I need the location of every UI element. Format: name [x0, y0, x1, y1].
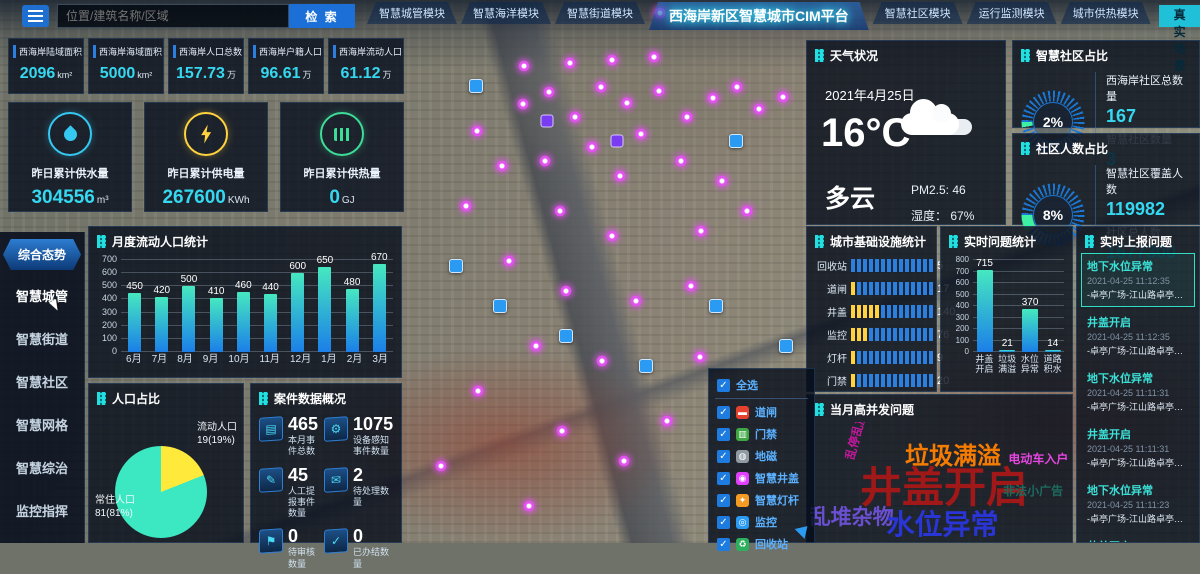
- layer-row-智慧井盖: ✓◉智慧井盖: [709, 467, 814, 489]
- infra-row-灯杆: 灯杆9: [807, 346, 936, 369]
- report-item[interactable]: 地下水位异常2021-04-25 11:11:31-卓亭广场-江山路卓亭广…: [1081, 365, 1195, 419]
- report-address: -卓亭广场-江山路卓亭广…: [1087, 512, 1189, 525]
- bar-column: 600: [289, 261, 306, 352]
- sidebar-item-智慧综治[interactable]: 智慧综治: [0, 446, 84, 489]
- infra-segment: [923, 328, 927, 341]
- x-tick-label: 3月: [372, 354, 388, 366]
- report-type: 地下水位异常: [1087, 482, 1189, 498]
- cloud-icon: [901, 113, 959, 135]
- bar[interactable]: [977, 270, 993, 352]
- infra-segment: [875, 259, 879, 272]
- x-tick-label: 7月: [152, 354, 168, 366]
- sidebar-item-智慧网格[interactable]: 智慧网格: [0, 403, 84, 446]
- infra-segment: [917, 259, 921, 272]
- area-stat-card: 西海岸海域面积5000km²: [88, 38, 164, 94]
- bar[interactable]: [210, 298, 223, 352]
- map-marker-device[interactable]: [531, 341, 542, 352]
- infra-segment: [851, 259, 855, 272]
- map-marker-device[interactable]: [504, 256, 515, 267]
- map-marker-device[interactable]: [732, 82, 743, 93]
- infra-row-井盖: 井盖140: [807, 300, 936, 323]
- map-marker-device[interactable]: [708, 93, 719, 104]
- water-drop-icon: [48, 112, 92, 156]
- module-tab[interactable]: 运行监测模块: [967, 2, 1057, 24]
- map-marker-device[interactable]: [717, 176, 728, 187]
- report-type: 井盖开启: [1087, 314, 1189, 330]
- case-stat-label: 待审核数量: [288, 547, 318, 570]
- map-marker-device[interactable]: [544, 87, 555, 98]
- supply-stat-card: 昨日累计供电量267600KWh: [144, 102, 268, 212]
- gauge-stat-label: 智慧社区覆盖人数: [1106, 165, 1191, 197]
- case-stat-texts: 0已办结数量: [353, 527, 393, 570]
- stat-label: 西海岸人口总数: [173, 45, 239, 58]
- map-marker-device[interactable]: [662, 416, 673, 427]
- report-item[interactable]: 地下水位异常2021-04-25 11:11:23-卓亭广场-江山路卓亭广…: [1081, 477, 1195, 531]
- report-type: 地下水位异常: [1087, 370, 1189, 386]
- bar-column: 650: [317, 255, 334, 352]
- stat-unit: 万: [227, 70, 236, 80]
- pm25-label: PM2.5:: [911, 183, 949, 197]
- report-address: -卓亭广场-江山路卓亭广…: [1087, 400, 1189, 413]
- lightning-icon: [184, 112, 228, 156]
- map-marker-device[interactable]: [631, 296, 642, 307]
- cursor-icon: [49, 299, 63, 316]
- panel-accent-icon: [1021, 142, 1030, 155]
- y-tick-label: 300: [947, 313, 969, 322]
- panel-head: 社区人数占比: [1013, 134, 1199, 161]
- infra-segment: [893, 374, 897, 387]
- report-item[interactable]: 地下水位异常2021-04-25 11:12:35-卓亭广场-江山路卓亭广…: [1081, 253, 1195, 307]
- infra-segment: [917, 282, 921, 295]
- layer-checkbox[interactable]: ✓: [717, 538, 730, 551]
- area-stat-card: 西海岸流动人口61.12万: [328, 38, 404, 94]
- panel-accent-icon: [949, 235, 958, 248]
- map-marker-device[interactable]: [619, 456, 630, 467]
- pie-slice-value: 81(81%): [95, 508, 135, 521]
- report-item[interactable]: 井盖开启2021-04-25 11:11:23-卓亭广场-江山路卓亭广…: [1081, 533, 1195, 542]
- infra-label: 灯杆: [813, 350, 847, 365]
- map-marker-camera[interactable]: [729, 134, 743, 148]
- bar[interactable]: [346, 289, 359, 352]
- layer-checkbox[interactable]: ✓: [717, 406, 730, 419]
- module-tab[interactable]: 城市供热模块: [1061, 2, 1151, 24]
- infra-segment: [881, 374, 885, 387]
- infra-segment: [929, 328, 933, 341]
- infra-segment: [929, 259, 933, 272]
- infra-segment: [851, 305, 855, 318]
- stat-unit: 万: [303, 70, 312, 80]
- case-stat-item: ▤465本月事件总数: [259, 415, 318, 458]
- infra-segment: [881, 305, 885, 318]
- bar-value: 14: [1047, 338, 1058, 349]
- map-marker-device[interactable]: [540, 156, 551, 167]
- bar-column: 420: [153, 285, 170, 352]
- report-type: 地下水位异常: [1087, 258, 1189, 274]
- infra-segment: [887, 328, 891, 341]
- infra-segment: [893, 351, 897, 364]
- infra-segment: [863, 259, 867, 272]
- plot-area: 0100200300400500600700450420500410460440…: [121, 260, 393, 352]
- x-tick-label: 垃圾满溢: [998, 354, 1016, 375]
- panel-title: 实时上报问题: [1100, 233, 1172, 250]
- bar[interactable]: [155, 297, 168, 352]
- pie-slice-name: 流动人口: [197, 422, 237, 435]
- infra-segment: [899, 259, 903, 272]
- case-stat-texts: 45人工提报事件数量: [288, 466, 318, 520]
- infra-segment: [857, 305, 861, 318]
- infra-segment: [923, 351, 927, 364]
- infra-segment: [851, 328, 855, 341]
- bar[interactable]: [128, 293, 141, 352]
- panel-population-ratio: 人口占比 流动人口19(19%)常住人口81(81%): [88, 383, 244, 543]
- bar[interactable]: [291, 273, 304, 352]
- map-marker-camera[interactable]: [639, 359, 653, 373]
- map-marker-device[interactable]: [597, 356, 608, 367]
- word-cloud: 垃圾满溢电动车入户井盖开启非法小广告乱堆杂物水位异常乱停乱放: [807, 422, 1072, 538]
- layer-checkbox[interactable]: ✓: [717, 472, 730, 485]
- search-bar: 检 索: [57, 4, 355, 28]
- y-tick-label: 700: [947, 267, 969, 276]
- layer-checkbox[interactable]: ✓: [717, 516, 730, 529]
- stat-label: 西海岸流动人口: [333, 45, 399, 58]
- humidity-label: 湿度：: [911, 209, 947, 223]
- done-shield-icon: ✓: [324, 528, 348, 554]
- problems-bar-chart: 01002003004005006007008007152137014井盖开启垃…: [941, 260, 1072, 375]
- plot-area: 01002003004005006007008007152137014: [973, 260, 1064, 352]
- map-marker-camera[interactable]: [493, 299, 507, 313]
- stat-label: 昨日累计供水量: [32, 165, 109, 181]
- x-tick-line: 开启: [975, 364, 993, 374]
- infra-segment: [887, 374, 891, 387]
- bar-value: 670: [371, 252, 388, 263]
- map-marker-device[interactable]: [754, 104, 765, 115]
- x-tick-label: 1月: [321, 354, 337, 366]
- sidebar-item-监控指挥[interactable]: 监控指挥: [0, 489, 84, 532]
- infra-segment: [875, 305, 879, 318]
- map-marker-device[interactable]: [596, 82, 607, 93]
- bar[interactable]: [264, 294, 277, 352]
- layer-label: 道闸: [755, 404, 777, 420]
- layer-row-道闸: ✓▬道闸: [709, 401, 814, 423]
- map-marker-device[interactable]: [615, 171, 626, 182]
- stat-value: 0GJ: [329, 187, 354, 209]
- panel-community-population-ratio: 社区人数占比8%智慧社区覆盖人数119982社区总人数1577300: [1012, 133, 1200, 225]
- layer-checkbox[interactable]: ✓: [717, 450, 730, 463]
- scene-button[interactable]: 真实场景: [1159, 5, 1200, 27]
- infra-segment: [869, 374, 873, 387]
- y-tick-label: 500: [947, 290, 969, 299]
- area-stat-card: 西海岸户籍人口96.61万: [248, 38, 324, 94]
- module-tab[interactable]: 智慧街道模块: [555, 2, 645, 24]
- map-marker-camera[interactable]: [449, 259, 463, 273]
- infra-segment: [875, 328, 879, 341]
- case-stat-item: ✉2待处理数量: [324, 466, 393, 520]
- infra-segment: [911, 351, 915, 364]
- sidebar-item-智慧城管[interactable]: 智慧城管: [0, 274, 84, 317]
- sidebar-item-智慧街道[interactable]: 智慧街道: [0, 317, 84, 360]
- infra-segment: [917, 374, 921, 387]
- device-sensor-icon: ⚙: [324, 416, 348, 442]
- infra-row-监控: 监控76: [807, 323, 936, 346]
- panel-accent-icon: [259, 392, 268, 405]
- pending-icon: ✉: [324, 467, 348, 493]
- infra-segment: [887, 259, 891, 272]
- map-marker-device[interactable]: [778, 92, 789, 103]
- stat-unit: KWh: [228, 195, 250, 206]
- report-type: 井盖开启: [1087, 426, 1189, 442]
- report-item[interactable]: 井盖开启2021-04-25 11:11:31-卓亭广场-江山路卓亭广…: [1081, 421, 1195, 475]
- area-stat-card: 西海岸陆域面积2096km²: [8, 38, 84, 94]
- sidebar-header-overview[interactable]: 综合态势: [3, 239, 81, 270]
- gauge-stat-value: 119982: [1106, 200, 1191, 218]
- pie-slice-label: 流动人口19(19%): [197, 422, 237, 447]
- bar-value: 500: [181, 274, 198, 285]
- hot-issue-word[interactable]: 乱堆杂物: [810, 501, 894, 531]
- case-stat-item: ✎45人工提报事件数量: [259, 466, 318, 520]
- map-marker-device[interactable]: [654, 86, 665, 97]
- bars: 7152137014: [973, 260, 1064, 352]
- map-marker-device[interactable]: [472, 126, 483, 137]
- infra-segment: [905, 328, 909, 341]
- stat-value: 157.73万: [173, 65, 239, 83]
- stat-label: 西海岸户籍人口: [253, 45, 319, 58]
- case-stat-label: 设备感知事件数量: [353, 435, 393, 458]
- infra-segment: [929, 351, 933, 364]
- bar-column: 410: [208, 286, 225, 352]
- menu-icon[interactable]: [22, 5, 49, 27]
- bar[interactable]: [237, 292, 250, 352]
- bar-value: 370: [1022, 297, 1039, 308]
- map-marker-camera[interactable]: [559, 329, 573, 343]
- hot-issue-word[interactable]: 非法小广告: [1003, 482, 1063, 499]
- infra-segment: [857, 259, 861, 272]
- hot-issue-word[interactable]: 水位异常: [887, 503, 999, 538]
- panel-accent-icon: [815, 403, 824, 416]
- stat-value: 5000km²: [93, 65, 159, 83]
- case-stat-label: 已办结数量: [353, 547, 393, 570]
- bar[interactable]: [373, 264, 386, 352]
- x-tick-label: 8月: [177, 354, 193, 366]
- map-marker-device[interactable]: [524, 501, 535, 512]
- panel-realtime-problem-stats: 实时问题统计 010020030040050060070080071521370…: [940, 226, 1073, 392]
- stat-label: 西海岸海域面积: [93, 45, 159, 58]
- infra-segment: [869, 259, 873, 272]
- infra-segment: [869, 328, 873, 341]
- map-marker-device[interactable]: [557, 426, 568, 437]
- infra-label: 道闸: [813, 281, 847, 296]
- map-marker-facility[interactable]: [611, 135, 624, 148]
- map-marker-device[interactable]: [686, 281, 697, 292]
- map-marker-device[interactable]: [742, 206, 753, 217]
- layer-checkbox[interactable]: ✓: [717, 428, 730, 441]
- map-marker-device[interactable]: [676, 156, 687, 167]
- panel-title: 月度流动人口统计: [112, 233, 208, 250]
- x-axis-labels: 井盖开启垃圾满溢水位异常道路积水: [973, 354, 1064, 375]
- bar[interactable]: [182, 286, 195, 352]
- bar[interactable]: [1022, 309, 1038, 352]
- case-stat-label: 待处理数量: [353, 486, 393, 509]
- area-stat-cards: 西海岸陆域面积2096km²西海岸海域面积5000km²西海岸人口总数157.7…: [8, 38, 404, 94]
- bar-column: 450: [126, 281, 143, 352]
- map-marker-camera[interactable]: [469, 79, 483, 93]
- map-marker-camera[interactable]: [709, 299, 723, 313]
- x-tick-line: 满溢: [998, 364, 1016, 374]
- map-marker-device[interactable]: [682, 112, 693, 123]
- x-tick-line: 异常: [1021, 364, 1039, 374]
- map-marker-device[interactable]: [622, 98, 633, 109]
- infra-segments: [851, 282, 933, 295]
- lightning-icon: [199, 125, 214, 144]
- infra-segment: [881, 282, 885, 295]
- map-marker-device[interactable]: [607, 55, 618, 66]
- bar[interactable]: [318, 267, 331, 352]
- recycle-station-icon: ♻: [736, 538, 749, 551]
- stat-value: 304556m³: [31, 187, 108, 209]
- map-marker-device[interactable]: [587, 142, 598, 153]
- bar-value: 600: [289, 261, 306, 272]
- infra-segment: [923, 259, 927, 272]
- map-marker-device[interactable]: [607, 231, 618, 242]
- panel-realtime-reports: 实时上报问题 地下水位异常2021-04-25 11:12:35-卓亭广场-江山…: [1076, 226, 1200, 543]
- map-marker-facility[interactable]: [541, 115, 554, 128]
- select-all-label: 全选: [736, 377, 758, 393]
- x-tick-label: 12月: [290, 354, 311, 366]
- y-tick-label: 300: [95, 307, 117, 317]
- x-tick-line: 垃圾: [998, 354, 1016, 364]
- panel-title: 实时问题统计: [964, 233, 1036, 250]
- infra-segment: [899, 374, 903, 387]
- bar-column: 715: [976, 258, 993, 352]
- infra-segment: [887, 282, 891, 295]
- map-marker-device[interactable]: [636, 129, 647, 140]
- map-marker-device[interactable]: [565, 58, 576, 69]
- map-marker-device[interactable]: [461, 201, 472, 212]
- infra-segment: [905, 351, 909, 364]
- bar[interactable]: [1045, 350, 1061, 352]
- map-marker-device[interactable]: [570, 112, 581, 123]
- bar-column: 370: [1022, 297, 1039, 352]
- x-tick-label: 水位异常: [1021, 354, 1039, 375]
- camera-icon: ◎: [736, 516, 749, 529]
- infra-segment: [893, 282, 897, 295]
- bar[interactable]: [999, 350, 1015, 352]
- layer-label: 监控: [755, 514, 777, 530]
- infra-segment: [863, 305, 867, 318]
- map-marker-device[interactable]: [497, 161, 508, 172]
- monitor-icon: ▤: [259, 416, 283, 442]
- layer-checkbox[interactable]: ✓: [717, 494, 730, 507]
- infra-segment: [875, 351, 879, 364]
- y-tick-label: 100: [947, 336, 969, 345]
- panel-title: 社区人数占比: [1036, 140, 1108, 157]
- case-stat-number: 1075: [353, 415, 393, 433]
- case-stat-item: ⚙1075设备感知事件数量: [324, 415, 393, 458]
- panel-title: 城市基础设施统计: [830, 233, 926, 250]
- y-tick-label: 400: [947, 301, 969, 310]
- x-tick-label: 9月: [203, 354, 219, 366]
- scene-switcher: 真实场景科技场景: [1159, 5, 1200, 27]
- case-stat-number: 2: [353, 466, 393, 484]
- panel-title: 天气状况: [830, 47, 878, 64]
- infra-segment: [881, 328, 885, 341]
- infra-segment: [851, 351, 855, 364]
- infra-segment: [887, 351, 891, 364]
- sidebar: 综合态势 智慧城管智慧街道智慧社区智慧网格智慧综治监控指挥: [0, 232, 85, 543]
- sidebar-menu: 智慧城管智慧街道智慧社区智慧网格智慧综治监控指挥: [0, 274, 84, 532]
- barrier-gate-icon: ▬: [736, 406, 749, 419]
- weather-description: 多云: [825, 179, 875, 215]
- select-all-checkbox[interactable]: ✓: [717, 379, 730, 392]
- bar-value: 715: [976, 258, 993, 269]
- y-tick-label: 0: [95, 346, 117, 356]
- infra-segment: [911, 374, 915, 387]
- map-marker-device[interactable]: [561, 286, 572, 297]
- x-tick-label: 10月: [228, 354, 249, 366]
- map-marker-device[interactable]: [436, 461, 447, 472]
- report-item[interactable]: 井盖开启2021-04-25 11:12:35-卓亭广场-江山路卓亭广…: [1081, 309, 1195, 363]
- sidebar-item-智慧社区[interactable]: 智慧社区: [0, 360, 84, 403]
- infra-segment: [857, 351, 861, 364]
- module-tab[interactable]: 智慧城管模块: [367, 2, 457, 24]
- map-marker-camera[interactable]: [779, 339, 793, 353]
- x-tick-label: 2月: [347, 354, 363, 366]
- bar-column: 14: [1045, 338, 1061, 352]
- map-marker-device[interactable]: [519, 61, 530, 72]
- map-marker-device[interactable]: [518, 99, 529, 110]
- infra-segment: [881, 259, 885, 272]
- infra-label: 井盖: [813, 304, 847, 319]
- infra-segment: [911, 328, 915, 341]
- infra-segments: [851, 351, 933, 364]
- stat-value: 2096km²: [13, 65, 79, 83]
- y-tick-label: 700: [95, 254, 117, 264]
- map-marker-device[interactable]: [696, 226, 707, 237]
- layer-label: 门禁: [755, 426, 777, 442]
- infra-segment: [893, 305, 897, 318]
- infra-segment: [929, 282, 933, 295]
- infra-segment: [923, 305, 927, 318]
- panel-accent-icon: [97, 235, 106, 248]
- module-tab[interactable]: 智慧海洋模块: [461, 2, 551, 24]
- case-stat-texts: 1075设备感知事件数量: [353, 415, 393, 458]
- y-tick-label: 400: [95, 293, 117, 303]
- map-marker-device[interactable]: [695, 352, 706, 363]
- bar-value: 21: [1002, 338, 1013, 349]
- x-tick-label: 井盖开启: [975, 354, 993, 375]
- search-input[interactable]: [57, 4, 289, 28]
- stat-unit: m³: [97, 195, 109, 206]
- map-marker-device[interactable]: [555, 206, 566, 217]
- module-tab[interactable]: 智慧社区模块: [873, 2, 963, 24]
- infra-segments: [851, 328, 933, 341]
- layer-label: 回收站: [755, 536, 788, 552]
- pie-slice-value: 19(19%): [197, 435, 237, 448]
- manhole-cover-icon: ◉: [736, 472, 749, 485]
- search-button[interactable]: 检 索: [289, 4, 355, 28]
- infra-segment: [887, 305, 891, 318]
- map-marker-device[interactable]: [473, 386, 484, 397]
- stat-unit: km²: [57, 70, 72, 80]
- infra-segment: [899, 282, 903, 295]
- geomagnetic-icon: ◍: [736, 450, 749, 463]
- infra-segment: [911, 259, 915, 272]
- infra-segment: [905, 305, 909, 318]
- infra-segment: [851, 282, 855, 295]
- supply-stat-card: 昨日累计供水量304556m³: [8, 102, 132, 212]
- infra-segment: [857, 282, 861, 295]
- panel-accent-icon: [815, 49, 824, 62]
- map-marker-device[interactable]: [649, 52, 660, 63]
